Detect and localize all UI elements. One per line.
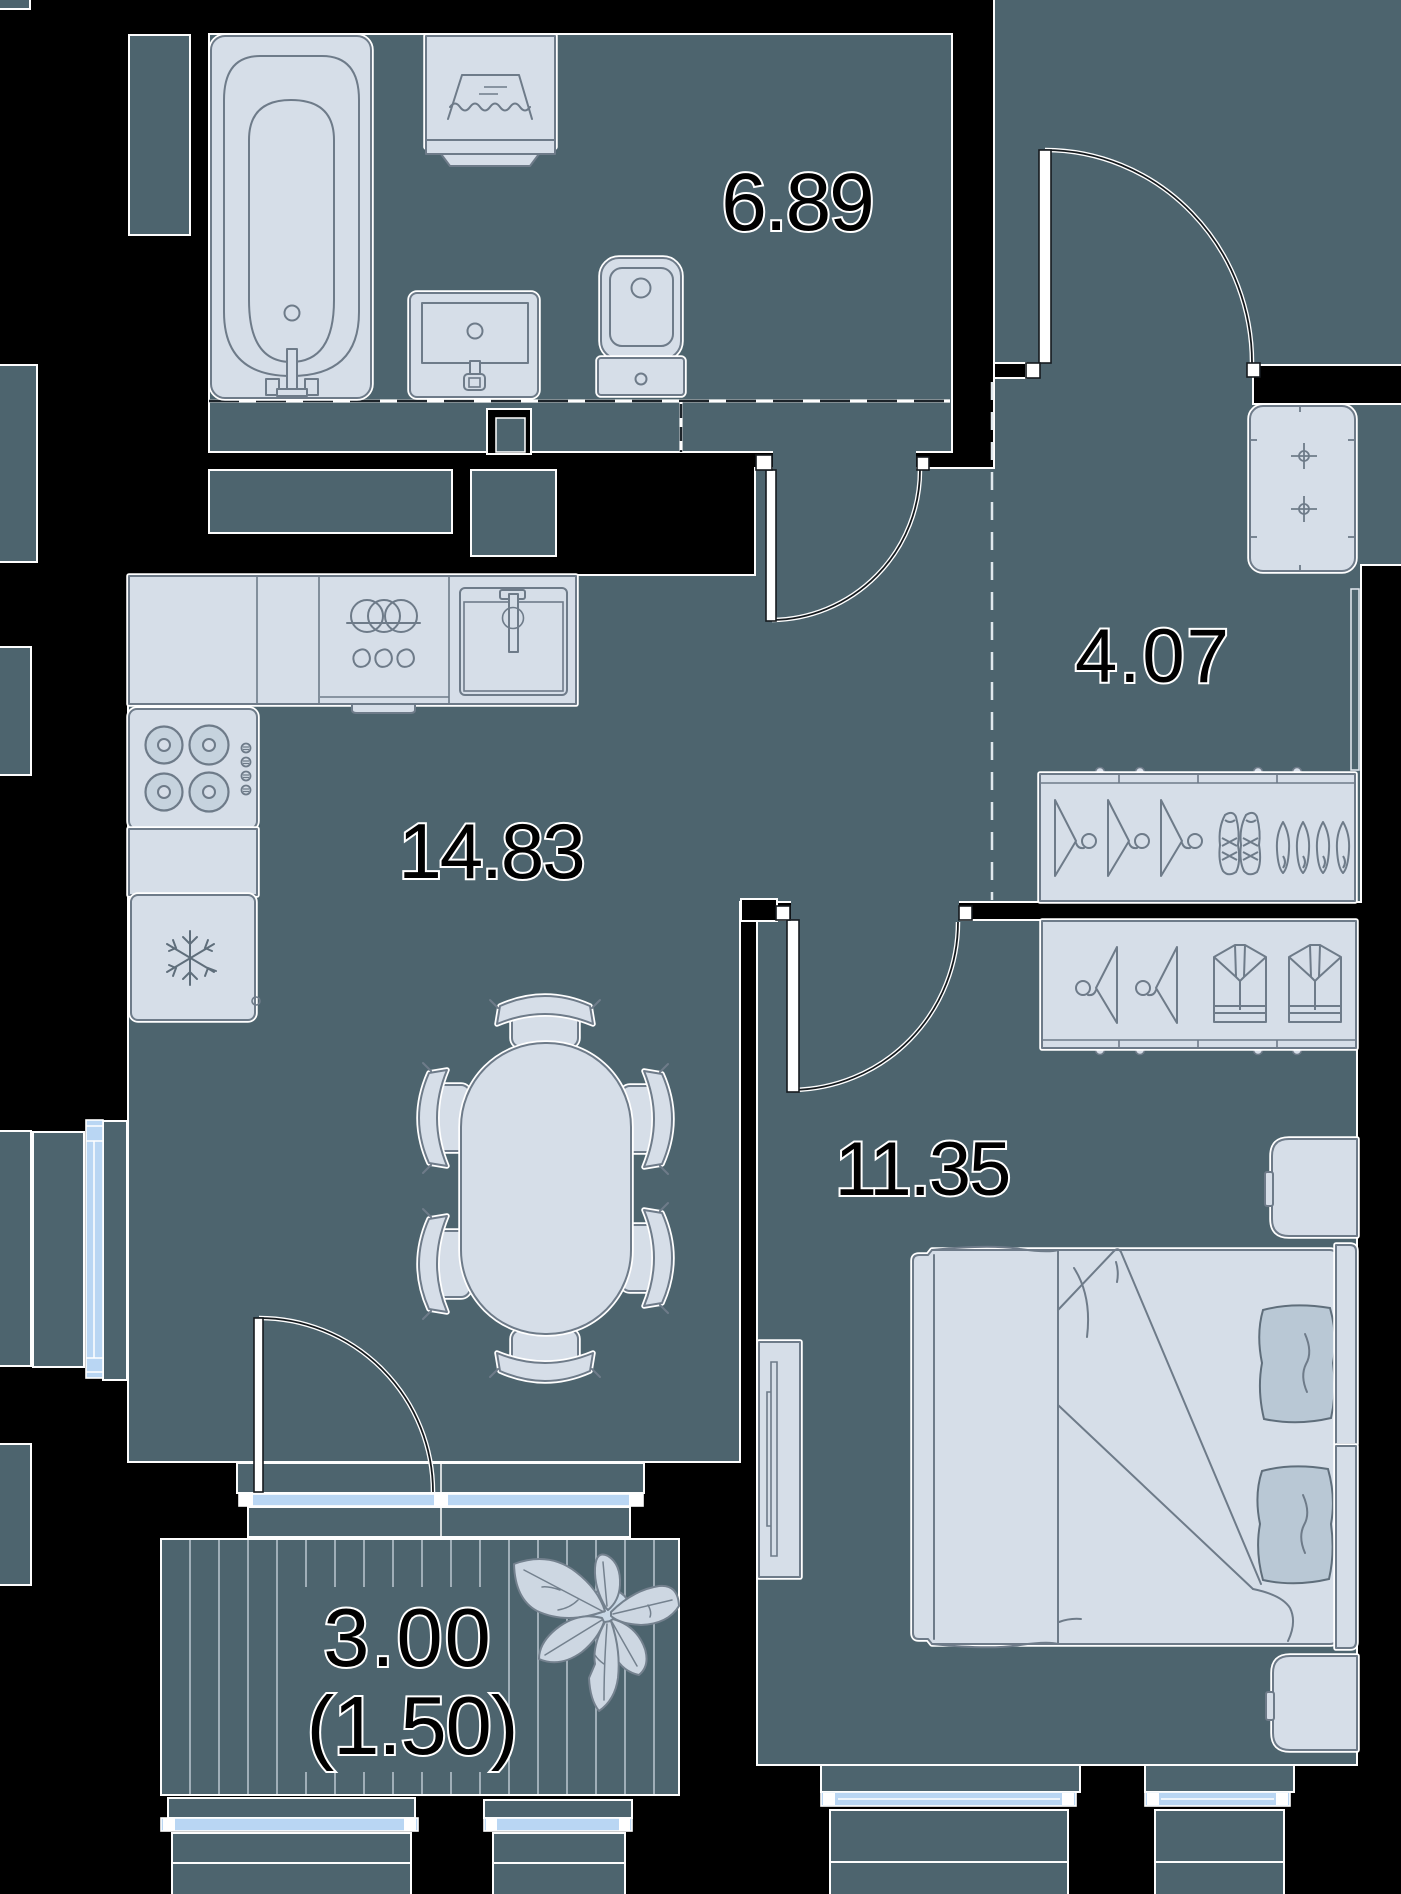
svg-text:3.00: 3.00 [323, 1591, 493, 1684]
svg-text:(1.50): (1.50) [307, 1679, 518, 1772]
svg-text:11.35: 11.35 [835, 1127, 1010, 1212]
svg-text:4.07: 4.07 [1075, 614, 1231, 699]
svg-text:14.83: 14.83 [398, 807, 583, 895]
svg-text:6.89: 6.89 [721, 157, 873, 248]
